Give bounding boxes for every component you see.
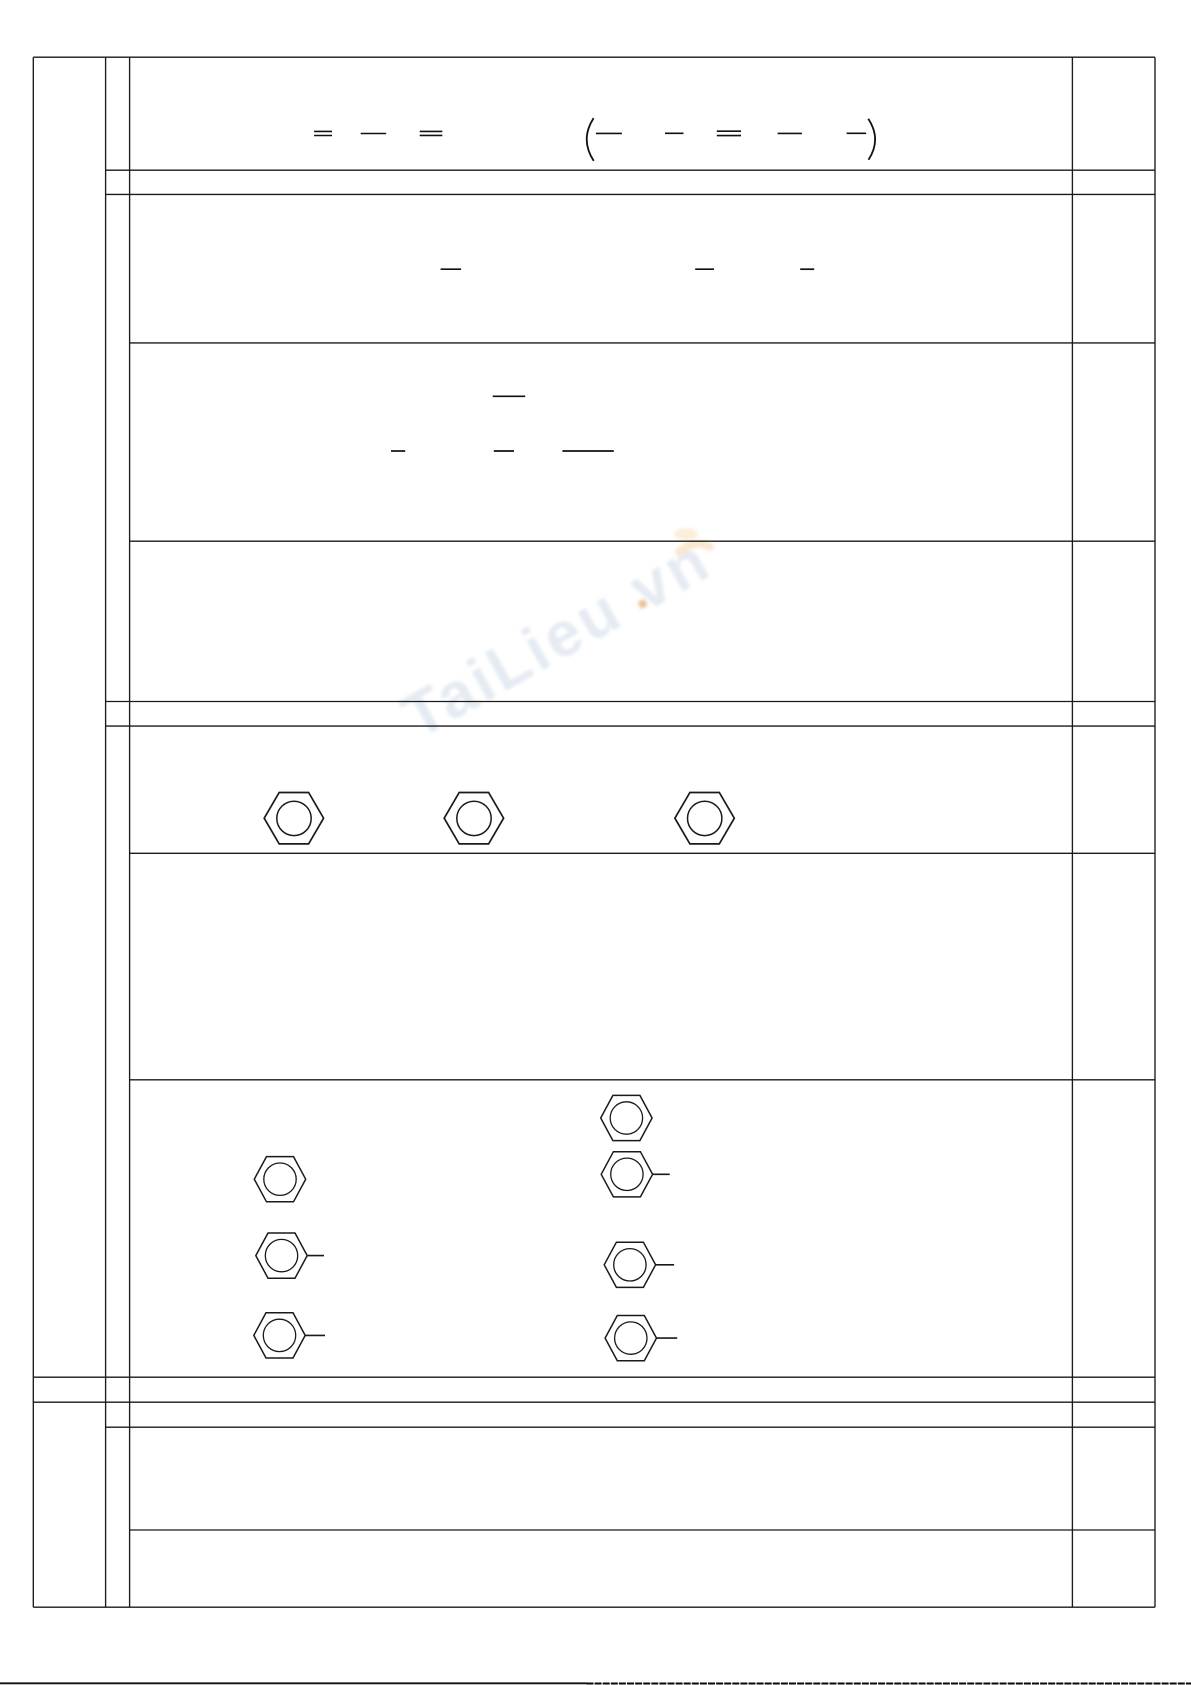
svg-text:TaiLieu.vn: TaiLieu.vn (391, 524, 723, 752)
